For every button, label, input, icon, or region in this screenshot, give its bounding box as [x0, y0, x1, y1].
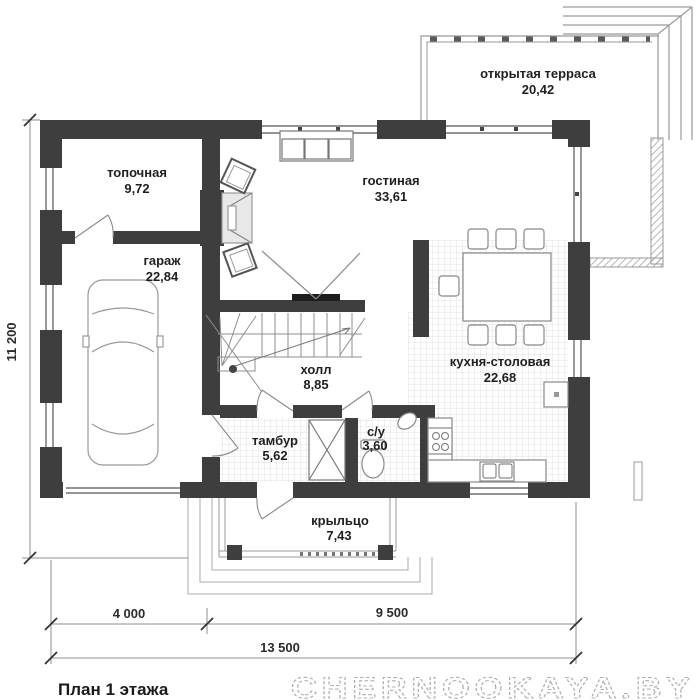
- window-garage-left-1: [40, 285, 62, 330]
- window-kitchen-bottom: [470, 482, 528, 498]
- door-vestibule-hall: [257, 390, 293, 411]
- sofa-icon: [280, 131, 353, 161]
- porch: [188, 498, 432, 594]
- room-label-porch: крыльцо: [311, 513, 369, 528]
- porch-post-icon: [227, 545, 242, 560]
- door-boiler: [75, 215, 113, 238]
- room-area-hall: 8,85: [303, 377, 328, 392]
- armchair-icon: [221, 159, 256, 194]
- watermark-text: CHERNOOKAYA.BY: [291, 672, 695, 700]
- room-area-living: 33,61: [375, 189, 408, 204]
- garage-door: [63, 482, 180, 498]
- door-entry-porch: [257, 482, 293, 519]
- window-living-right: [568, 147, 590, 242]
- room-label-living: гостиная: [362, 173, 419, 188]
- room-area-bathroom: 3,60: [362, 438, 387, 453]
- room-label-kitchen: кухня-столовая: [450, 354, 551, 369]
- room-area-terrace: 20,42: [522, 82, 555, 97]
- dim-left-total: 11 200: [4, 322, 19, 361]
- downpipe-icon: [634, 462, 642, 500]
- room-area-kitchen: 22,68: [484, 370, 517, 385]
- porch-post-icon: [378, 545, 393, 560]
- dim-bottom-total: 13 500: [260, 640, 300, 655]
- dim-bottom-right: 9 500: [376, 605, 409, 620]
- fireplace-icon: [222, 193, 252, 243]
- car-icon: [83, 280, 163, 465]
- window-living-top-2: [446, 120, 552, 139]
- room-label-boiler: топочная: [107, 165, 167, 180]
- tv-icon: [262, 251, 360, 301]
- window-garage-left-2: [40, 403, 62, 447]
- room-label-terrace: открытая терраса: [480, 66, 596, 81]
- floor-plan-page: топочная 9,72 гараж 22,84 гостиная 33,61…: [0, 0, 700, 700]
- stove-icon: [428, 428, 452, 454]
- stairs-icon: [206, 313, 365, 392]
- room-area-boiler: 9,72: [124, 181, 149, 196]
- fridge-icon: [544, 382, 568, 407]
- sink-icon: [480, 462, 514, 481]
- watermark: CHERNOOKAYA.BY: [287, 672, 697, 700]
- room-label-hall: холл: [300, 362, 331, 377]
- armchair-icon: [223, 243, 256, 276]
- room-area-porch: 7,43: [326, 528, 351, 543]
- room-label-vestibule: тамбур: [252, 433, 298, 448]
- room-area-vestibule: 5,62: [262, 448, 287, 463]
- wardrobe-icon: [309, 420, 345, 480]
- window-boiler-left: [40, 168, 62, 210]
- window-kitchen-right: [568, 340, 590, 377]
- room-label-garage: гараж: [143, 253, 181, 268]
- dim-bottom-left: 4 000: [113, 606, 146, 621]
- door-bathroom: [342, 391, 372, 410]
- floor-plan-drawing: топочная 9,72 гараж 22,84 гостиная 33,61…: [0, 0, 700, 700]
- room-label-bathroom: с/у: [367, 424, 386, 439]
- page-title: План 1 этажа: [58, 680, 169, 699]
- room-area-garage: 22,84: [146, 269, 179, 284]
